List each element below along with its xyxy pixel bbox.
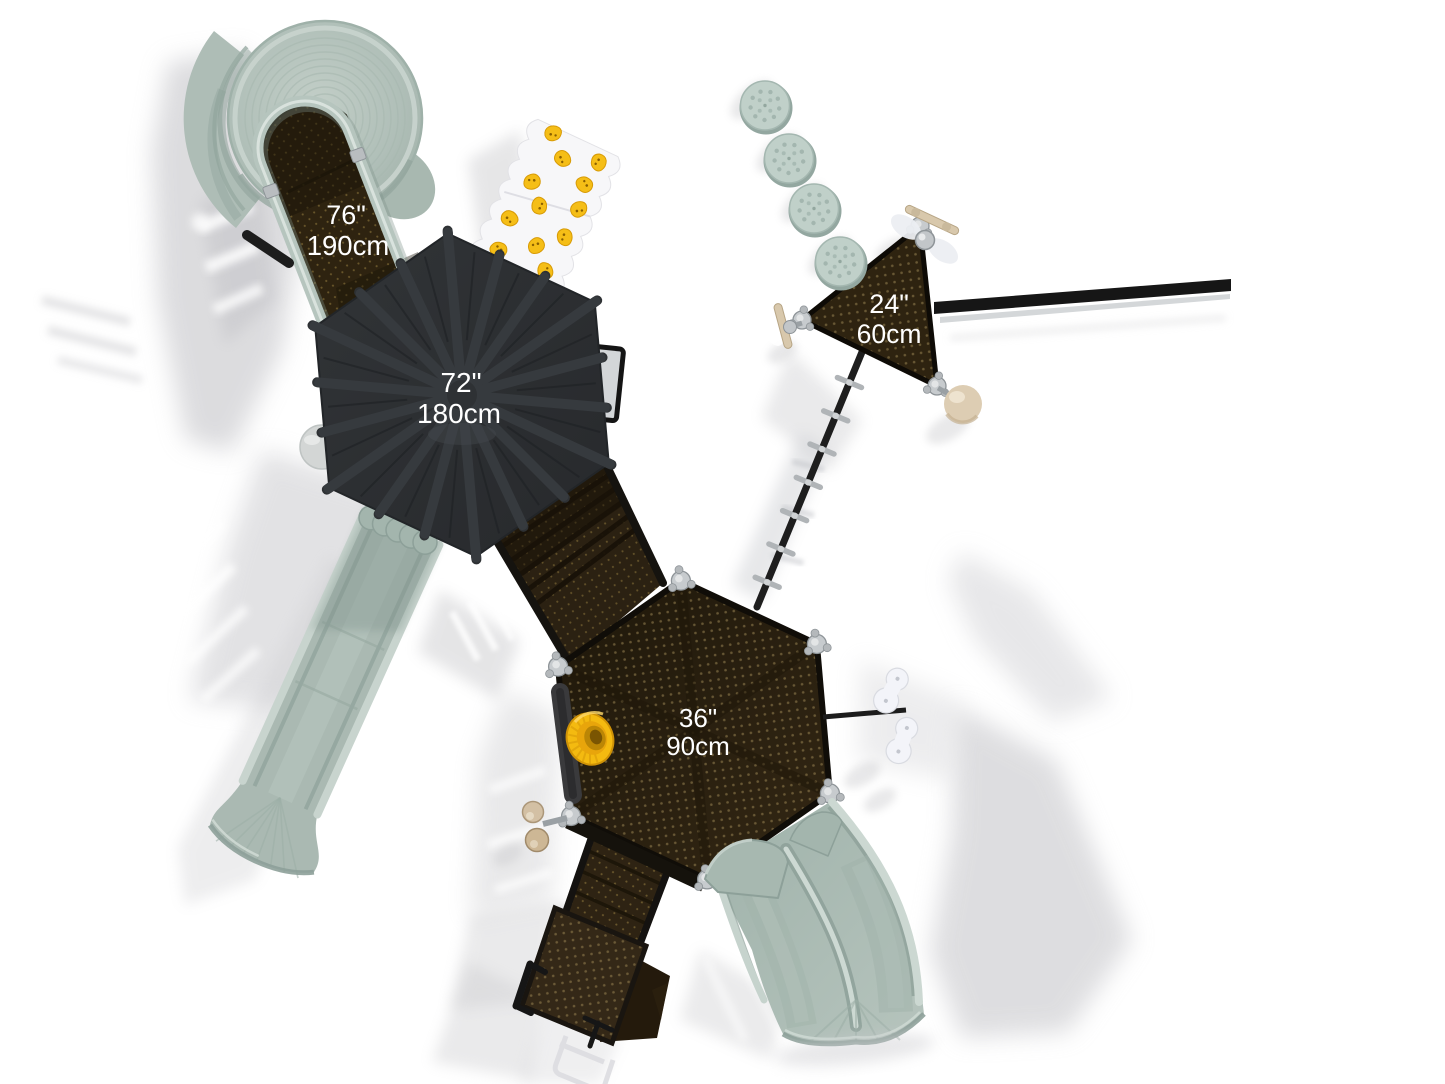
svg-text:60cm: 60cm bbox=[857, 319, 922, 349]
svg-text:90cm: 90cm bbox=[666, 731, 730, 761]
svg-text:76": 76" bbox=[326, 200, 366, 230]
svg-text:36": 36" bbox=[679, 703, 717, 733]
svg-text:72": 72" bbox=[440, 367, 481, 398]
svg-text:190cm: 190cm bbox=[307, 230, 390, 261]
svg-text:180cm: 180cm bbox=[417, 398, 501, 429]
svg-text:24": 24" bbox=[869, 289, 909, 319]
